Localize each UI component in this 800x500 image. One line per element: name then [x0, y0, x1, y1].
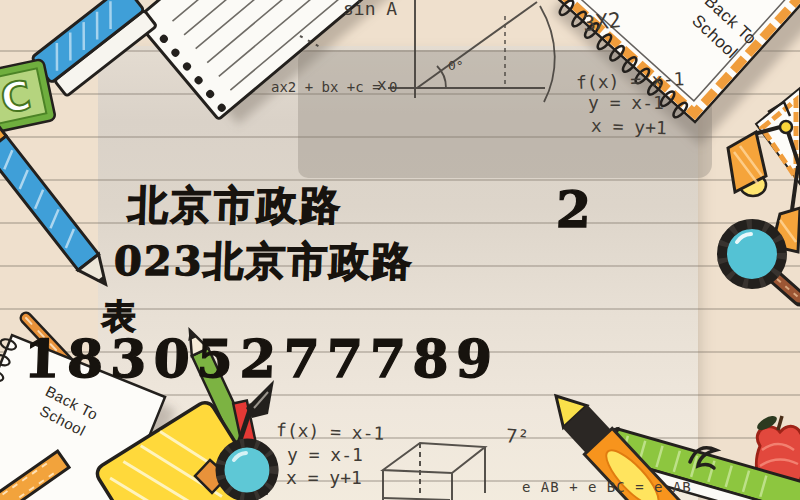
formula-fx-top-3: x = y+1 — [591, 115, 668, 139]
formula-fx-top-2: y = x-1 — [588, 92, 664, 113]
formula-vector: e AB + e BC = e AB — [522, 479, 692, 495]
back-to-school-poster: sin A ax2 + bx +c = 0 3X2 x 0° f(x) = x-… — [0, 0, 800, 500]
title-line2: 023北京市政路 — [113, 234, 414, 289]
formula-sin: sin A — [343, 0, 397, 19]
formula-fx-top-1: f(x) = x-1 — [576, 68, 685, 93]
formula-fx-bottom-3: x = y+1 — [286, 467, 362, 488]
formula-fx-bottom-2: y = x-1 — [287, 444, 363, 465]
formula-cubic: 3X2 — [582, 8, 622, 36]
title-line1-left: 北京市政路 — [127, 178, 344, 233]
title-phone-number: 18305277789 — [23, 328, 500, 389]
formula-fx-bottom-1: f(x) = x-1 — [276, 419, 385, 444]
axis-x-label: x — [377, 75, 387, 94]
angle-label: 0° — [448, 58, 464, 73]
title-line1-right: 2 — [555, 180, 592, 239]
formula-square: 7² — [505, 424, 529, 448]
